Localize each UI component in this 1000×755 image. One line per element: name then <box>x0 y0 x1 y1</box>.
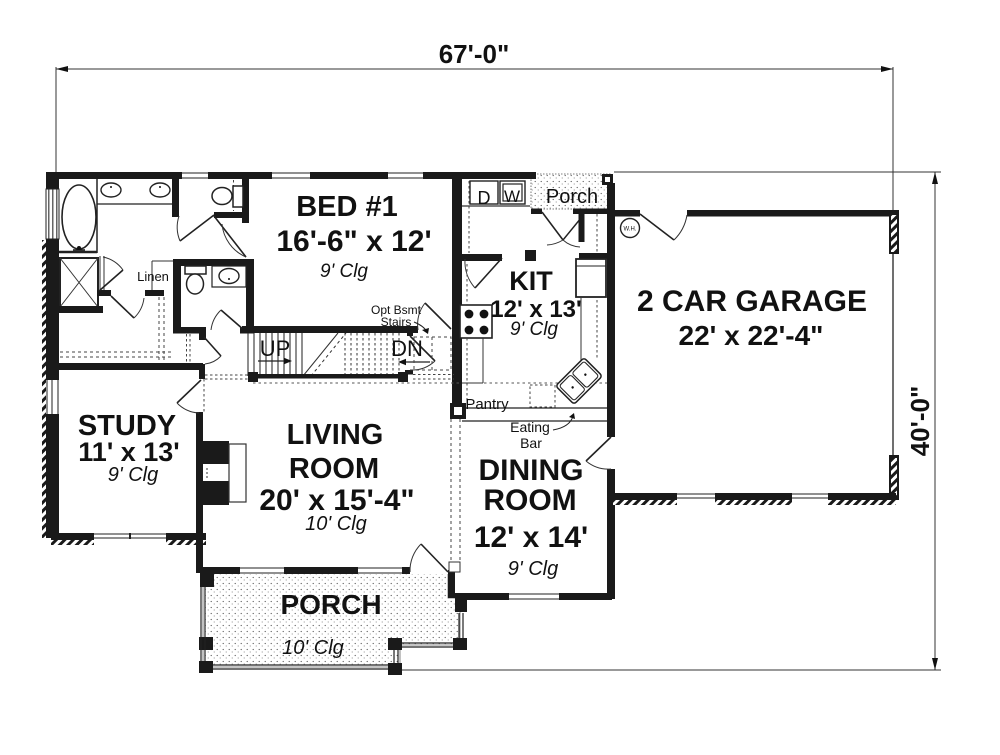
svg-text:2 CAR GARAGE: 2 CAR GARAGE <box>637 285 867 318</box>
svg-text:UP: UP <box>260 336 291 361</box>
svg-text:67'-0": 67'-0" <box>439 39 510 69</box>
svg-text:12' x 14': 12' x 14' <box>474 521 588 554</box>
svg-text:9' Clg: 9' Clg <box>108 464 159 486</box>
svg-text:Porch: Porch <box>546 186 598 208</box>
svg-text:9' Clg: 9' Clg <box>320 261 368 282</box>
svg-text:Eating: Eating <box>510 419 550 435</box>
svg-text:11' x 13': 11' x 13' <box>78 437 179 467</box>
svg-text:W.H.: W.H. <box>624 227 637 233</box>
svg-text:40'-0": 40'-0" <box>905 386 935 457</box>
svg-text:BED #1: BED #1 <box>296 191 398 223</box>
svg-text:Linen: Linen <box>137 269 169 284</box>
svg-text:22' x 22'-4": 22' x 22'-4" <box>679 320 824 351</box>
svg-text:10' Clg: 10' Clg <box>305 513 367 535</box>
svg-text:KIT: KIT <box>509 266 553 296</box>
svg-text:PORCH: PORCH <box>280 589 381 620</box>
svg-text:9' Clg: 9' Clg <box>508 558 559 580</box>
svg-text:ROOM: ROOM <box>483 484 576 517</box>
svg-text:16'-6" x 12': 16'-6" x 12' <box>276 225 431 258</box>
svg-text:Stairs: Stairs <box>381 315 412 329</box>
svg-text:ROOM: ROOM <box>289 453 379 485</box>
svg-text:LIVING: LIVING <box>287 419 384 451</box>
svg-text:D: D <box>478 188 491 208</box>
svg-text:W: W <box>504 187 520 206</box>
svg-text:Bar: Bar <box>520 435 542 451</box>
svg-text:DINING: DINING <box>479 454 584 487</box>
svg-text:Pantry: Pantry <box>465 396 509 413</box>
svg-text:10' Clg: 10' Clg <box>282 637 344 659</box>
svg-text:DN: DN <box>391 336 423 361</box>
svg-text:9' Clg: 9' Clg <box>510 319 558 340</box>
